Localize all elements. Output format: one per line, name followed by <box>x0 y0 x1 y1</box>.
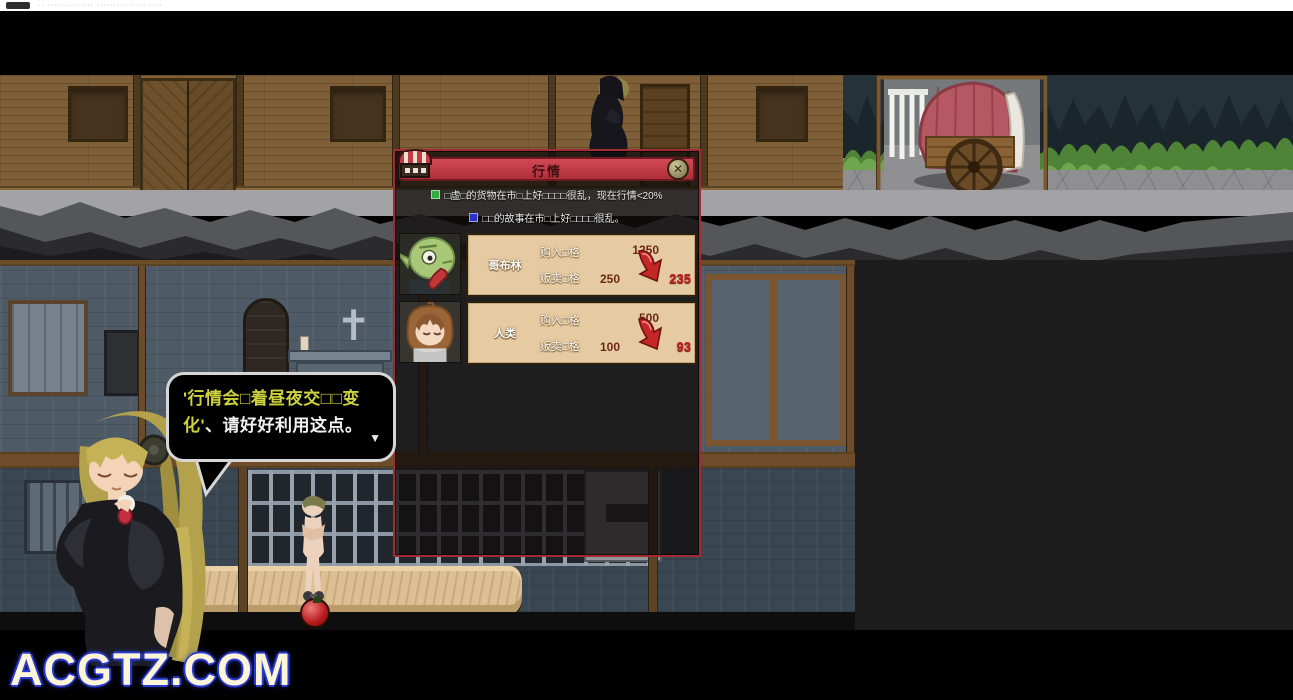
market-row-human[interactable]: 人类 购入□格 500 贩卖□格 100 93 <box>399 301 697 365</box>
altar-top <box>288 350 392 362</box>
caged-slave-figure[interactable] <box>288 494 338 606</box>
sell-price-new: 235 <box>669 271 691 286</box>
bubble-line-2-highlight: 化' <box>183 416 205 435</box>
facade-window-opening <box>68 86 128 142</box>
dark-area <box>855 240 1293 630</box>
buy-price-label: 购入□格 <box>540 244 580 260</box>
letterbox-top <box>0 11 1293 75</box>
market-row-goblin[interactable]: 哥布林 购入□格 1250 贩卖□格 250 235 <box>399 233 697 297</box>
window-title: ·· ········· ···· ··········· ··· ···· <box>38 0 163 11</box>
facade-post <box>700 75 708 196</box>
facade-post <box>236 75 244 196</box>
buy-price-label: 购入□格 <box>540 312 580 328</box>
race-name: 哥布林 <box>474 257 536 273</box>
orb-leaf <box>313 596 321 603</box>
dialog-title: 行情 <box>401 161 693 180</box>
altar-candle <box>300 336 309 351</box>
speech-bubble[interactable]: '行情会□着昼夜交□□变 化'、请好好利用这点。 ▼ <box>166 372 396 462</box>
facade-window-opening <box>756 86 808 142</box>
chapel-cross-icon: ✝ <box>336 300 370 352</box>
green-cube-icon <box>431 190 440 199</box>
market-price-dialog: 行情 ✕ □虚□的货物在市□上好□□□□很乱，现在行情<20% □□的故事在市□… <box>393 149 701 557</box>
info-text-2: □□的故事在市□上好□□□□很乱。 <box>482 210 624 225</box>
price-drop-arrow-icon <box>635 316 663 352</box>
site-watermark: ACGTZ.COM <box>10 644 291 696</box>
interior-window <box>8 300 88 396</box>
bubble-line-2: 化'、请好好利用这点。 <box>183 412 381 439</box>
covered-wagon <box>876 75 1048 199</box>
ground-post <box>238 468 248 614</box>
speech-bubble-tail <box>188 456 236 498</box>
price-drop-arrow-icon <box>635 248 663 284</box>
race-name: 人类 <box>474 325 536 341</box>
goblin-portrait <box>399 233 461 295</box>
bubble-line-2-rest: 、请好好利用这点。 <box>205 416 363 435</box>
dialog-header: 行情 ✕ <box>399 157 695 181</box>
human-portrait <box>399 301 461 363</box>
market-info-line-1: □虚□的货物在市□上好□□□□很乱，现在行情<20% <box>395 187 699 202</box>
sell-price-label: 贩卖□格 <box>540 270 580 286</box>
close-button[interactable]: ✕ <box>667 158 689 180</box>
market-info-line-2: □□的故事在市□上好□□□□很乱。 <box>395 210 699 225</box>
sell-price-new: 93 <box>677 339 691 354</box>
sell-price-old: 100 <box>600 340 620 354</box>
human-price-panel: 人类 购入□格 500 贩卖□格 100 93 <box>466 301 697 365</box>
window-icon <box>6 2 30 9</box>
market-stall-icon <box>396 147 434 181</box>
goblin-price-panel: 哥布林 购入□格 1250 贩卖□格 250 235 <box>466 233 697 297</box>
interior-room-frame <box>706 274 846 446</box>
facade-window-opening <box>330 86 386 142</box>
sell-price-label: 贩卖□格 <box>540 338 580 354</box>
bubble-line-1: '行情会□着昼夜交□□变 <box>183 385 381 412</box>
double-door <box>140 78 236 196</box>
sell-price-old: 250 <box>600 272 620 286</box>
window-titlebar[interactable]: ·· ········· ···· ··········· ··· ···· <box>0 0 1293 11</box>
red-orb-item[interactable] <box>300 598 330 628</box>
game-screen: ✝ <box>0 0 1293 700</box>
info-text-1: □虚□的货物在市□上好□□□□很乱，现在行情<20% <box>444 187 662 202</box>
interior-dark-window <box>104 330 140 396</box>
blue-cube-icon <box>469 213 478 222</box>
advance-indicator-icon[interactable]: ▼ <box>369 431 381 445</box>
